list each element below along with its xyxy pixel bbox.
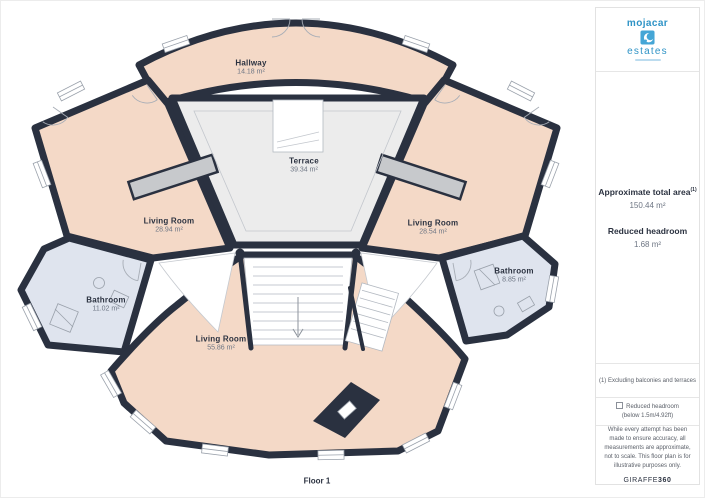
logo-tagline <box>635 59 661 61</box>
disclaimer-section: While every attempt has been made to ens… <box>596 426 699 487</box>
area-summary-section: Approximate total area(1) 150.44 m² Redu… <box>596 72 699 364</box>
footnote-2-detail: (below 1.5m/4.92ft) <box>622 412 673 421</box>
total-area-label-text: Approximate total area <box>598 187 690 197</box>
footnote-1: (1) Excluding balconies and terraces <box>596 364 699 398</box>
window <box>57 81 84 101</box>
footnote-2-title: Reduced headroom <box>626 404 679 410</box>
room-label-living-bottom: Living Room 55.86 m² <box>196 335 247 352</box>
room-label-bathroom-left: Bathroom 11.02 m² <box>86 296 125 313</box>
window <box>318 450 344 459</box>
window <box>507 81 534 101</box>
logo-section: mojacar estates <box>596 8 699 72</box>
reduced-headroom-value: 1.68 m² <box>634 240 661 249</box>
staircase-main <box>236 249 361 349</box>
total-area-label: Approximate total area(1) <box>598 187 696 197</box>
room-area: 11.02 m² <box>86 306 125 313</box>
room-name: Bathroom <box>86 296 125 305</box>
room-name: Living Room <box>144 217 195 226</box>
info-sidebar: mojacar estates Approximate total area(1… <box>595 7 700 485</box>
reduced-headroom-label: Reduced headroom <box>608 226 687 236</box>
floor-plan-svg <box>1 1 595 498</box>
room-label-bathroom-right: Bathroom 8.85 m² <box>494 267 533 284</box>
room-area: 8.85 m² <box>494 277 533 284</box>
floor-label: Floor 1 <box>304 477 331 486</box>
rooms-layer <box>21 23 557 455</box>
brand-regular: GIRAFFE <box>623 477 658 484</box>
room-name: Living Room <box>408 219 459 228</box>
disclaimer-text: While every attempt has been made to ens… <box>602 426 693 471</box>
footnote-2: Reduced headroom (below 1.5m/4.92ft) <box>596 398 699 426</box>
floorplan-page: Hallway 14.18 m² Terrace 39.34 m² Living… <box>0 0 705 498</box>
brand-bold: 360 <box>658 477 671 484</box>
room-area: 39.34 m² <box>289 167 319 174</box>
logo-wordmark-top: mojacar <box>627 18 668 29</box>
room-bathroom-right-floor <box>442 236 555 341</box>
room-area: 28.94 m² <box>144 227 195 234</box>
room-label-terrace: Terrace 39.34 m² <box>289 157 319 174</box>
mojacar-estates-logo-icon <box>640 30 655 45</box>
reduced-headroom-checkbox <box>616 402 623 409</box>
room-name: Terrace <box>289 157 319 166</box>
footnote-2-title-row: Reduced headroom <box>616 402 679 412</box>
total-area-footnote-marker: (1) <box>691 187 697 193</box>
room-label-hallway: Hallway 14.18 m² <box>235 59 266 76</box>
room-hallway-floor <box>139 23 453 104</box>
room-label-living-right: Living Room 28.54 m² <box>408 219 459 236</box>
logo-wordmark-bottom: estates <box>627 46 668 57</box>
room-name: Bathroom <box>494 267 533 276</box>
room-area: 28.54 m² <box>408 229 459 236</box>
room-area: 55.86 m² <box>196 345 247 352</box>
room-label-living-left: Living Room 28.94 m² <box>144 217 195 234</box>
room-area: 14.18 m² <box>235 69 266 76</box>
room-name: Hallway <box>235 59 266 68</box>
room-name: Living Room <box>196 335 247 344</box>
total-area-value: 150.44 m² <box>629 201 665 210</box>
giraffe360-brand: GIRAFFE360 <box>623 476 671 487</box>
